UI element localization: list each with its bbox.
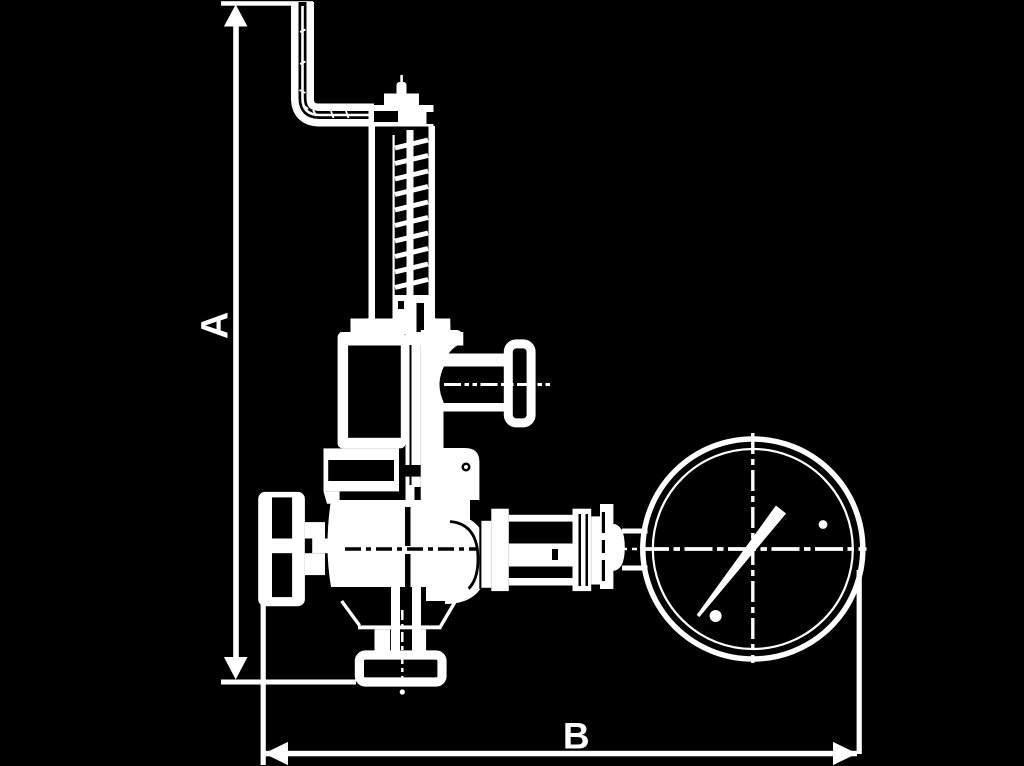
svg-text:A: A [194,312,236,339]
svg-text:B: B [563,716,590,757]
